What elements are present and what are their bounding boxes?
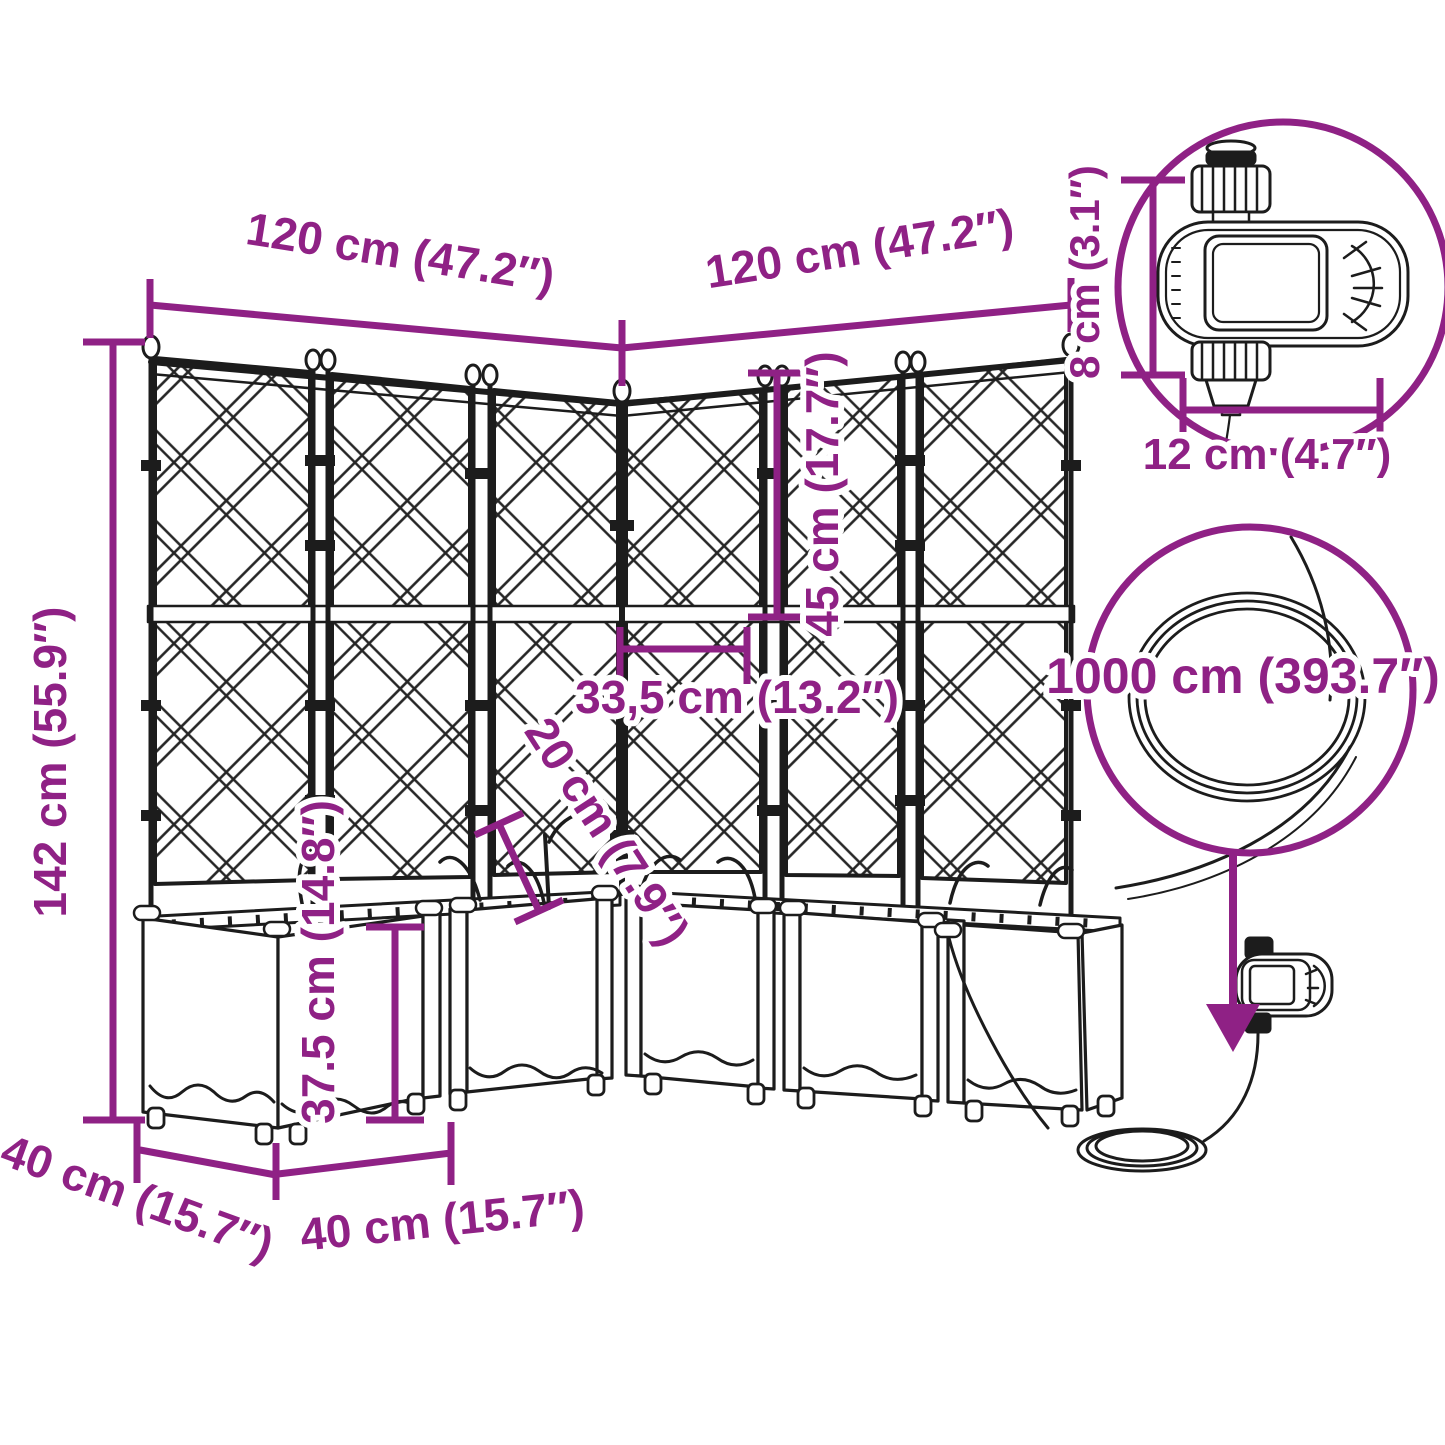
dim-line-width-right [622,305,1071,348]
planter-divider [450,907,467,1094]
trellis-mid-rail [148,606,1074,622]
planter-end-face [1082,925,1122,1110]
label-timer-height: 8 cm (3.1″) [1061,165,1108,379]
planter-divider [922,918,938,1101]
label-total-height: 142 cm (55.9″) [24,607,76,918]
planter-box-face [964,925,1082,1110]
label-post-spacing: 33,5 cm (13.2″) [575,671,899,723]
dim-line-total-height [83,342,145,1120]
planter-box-face [467,898,607,1092]
planter-divider [423,910,440,1098]
planter-divider [597,895,612,1079]
label-planter-height: 37.5 cm (14.8″) [292,800,344,1124]
label-hose-length: 1000 cm (393.7″) [1046,648,1440,704]
trellis-panel [626,391,761,872]
planter-box-face [800,913,922,1099]
dim-line-width-left [150,305,622,348]
label-trellis-section-height: 45 cm (17.7″) [796,351,848,636]
trellis-panel [332,374,470,879]
label-depth-right: 40 cm (15.7″) [298,1179,587,1261]
dimension-diagram: 120 cm (47.2″) 120 cm (47.2″) 142 cm (55… [0,0,1445,1445]
label-timer-width: 12 cm (4.7″) [1143,430,1392,479]
label-width-right: 120 cm (47.2″) [702,198,1017,298]
diagram-canvas: 120 cm (47.2″) 120 cm (47.2″) 142 cm (55… [0,0,1445,1445]
label-width-left: 120 cm (47.2″) [243,202,558,302]
hose-inset-drawing [1116,537,1365,899]
planter-divider [758,906,774,1089]
planter-divider [784,908,800,1091]
